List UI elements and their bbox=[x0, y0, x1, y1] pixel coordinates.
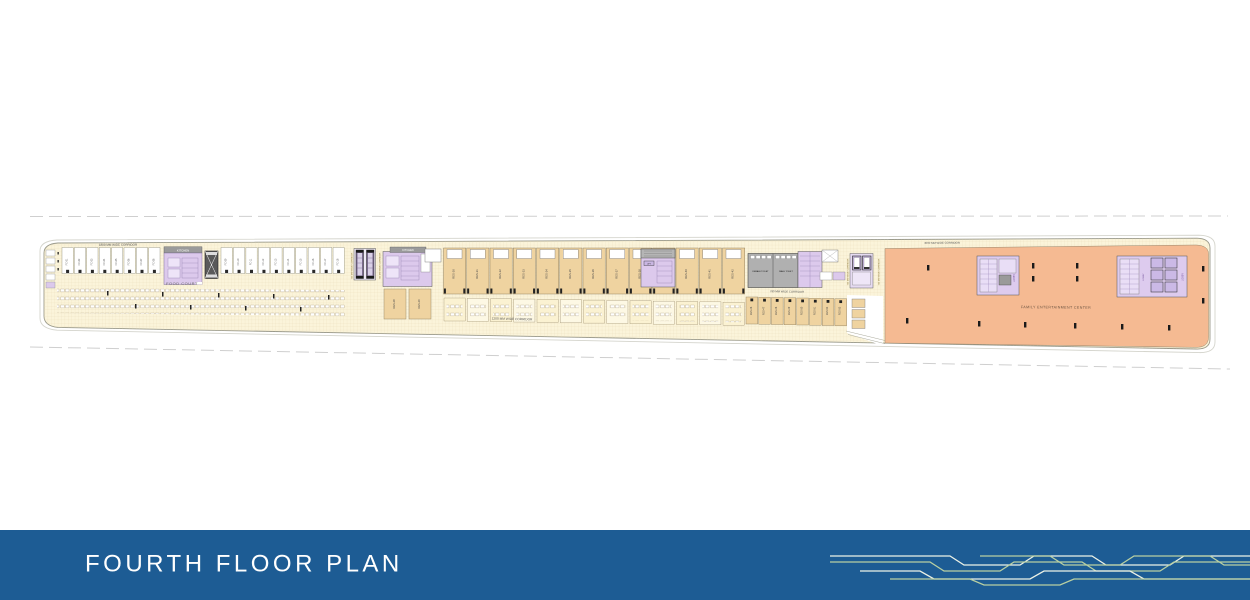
corridor-label: 750 MM WIDE CORRIDOR bbox=[352, 252, 354, 279]
corridor-label: 4000 MM WIDE CORRIDOR bbox=[924, 241, 960, 245]
corridor-label: 750 MM WIDE CORRIDOR bbox=[879, 258, 881, 285]
corridor-label: 750 MM WIDE CORRIDOR bbox=[848, 258, 850, 285]
unit-label: RES-53 bbox=[839, 306, 842, 315]
unit-label: FC-01 bbox=[66, 258, 69, 265]
fec-label: FAMILY ENTERTAINMENT CENTER bbox=[1021, 305, 1091, 310]
unit-label: RES-46 bbox=[750, 306, 753, 315]
unit-label: RES-30 bbox=[452, 269, 456, 279]
unit-label: RES-51 bbox=[813, 306, 816, 315]
unit-label: FC-02 bbox=[78, 258, 81, 265]
footer-bar: FOURTH FLOOR PLAN bbox=[0, 530, 1250, 600]
floor-plan-drawing: 1800 MM WIDE CORRIDOR FC-01FC-02FC-03FC-… bbox=[0, 0, 1250, 600]
unit-label: FC-06 bbox=[128, 258, 131, 265]
unit-label: FC-12 bbox=[262, 258, 265, 265]
stair-block bbox=[205, 251, 218, 279]
unit-label: RES-31 bbox=[475, 269, 479, 279]
top-dashed-line bbox=[30, 216, 1228, 217]
kitchen-label: KITCHEN bbox=[177, 248, 189, 252]
floor-plan-title: FOURTH FLOOR PLAN bbox=[85, 550, 403, 578]
unit-label: FC-16 bbox=[312, 258, 315, 265]
unit-label: RES-37 bbox=[614, 269, 618, 279]
kitchen-block: KITCHEN bbox=[164, 247, 202, 285]
unit-label: RES-48 bbox=[775, 306, 778, 315]
male-toilet-label: MALE TOILET bbox=[779, 270, 793, 273]
unit-label: FC-13 bbox=[274, 258, 277, 265]
unit-label: FC-11 bbox=[250, 258, 253, 265]
female-toilet-label: FEMALE TOILET bbox=[752, 270, 769, 273]
food-court-label: FOOD COURT bbox=[166, 281, 198, 286]
unit-label: RES-35 bbox=[568, 269, 572, 279]
unit-label: FC-07 bbox=[140, 258, 143, 265]
unit-label: FC-05 bbox=[115, 258, 118, 265]
unit-label: FC-09 bbox=[225, 258, 228, 265]
kitchen-label: KITCHEN bbox=[402, 248, 414, 252]
unit-label: RES-49 bbox=[788, 306, 791, 315]
food-court-tables bbox=[57, 288, 345, 316]
unit-label: RES-41 bbox=[707, 269, 711, 279]
fec-stair-lobby-1: LOBBY bbox=[977, 256, 1019, 295]
fec-stair-lobby-2: LOBBY LOBBY bbox=[1117, 256, 1187, 297]
corridor-label: 1800 MM WIDE CORRIDOR bbox=[99, 243, 138, 247]
unit-label: RES-34 bbox=[545, 269, 549, 279]
unit-label: FC-15 bbox=[299, 258, 302, 265]
unit-label: RES-33 bbox=[521, 269, 525, 279]
corridor-label: 750 MM WIDE CORRIDOR bbox=[380, 252, 382, 279]
unit-label: RES-28 bbox=[392, 299, 396, 309]
unit-label: FC-10 bbox=[237, 258, 240, 265]
unit-label: FC-14 bbox=[287, 258, 290, 265]
unit-label: FC-18 bbox=[337, 258, 340, 265]
unit-label: FC-17 bbox=[324, 258, 327, 265]
unit-label: FC-08 bbox=[152, 258, 155, 265]
lobby-label: LOBBY bbox=[1182, 273, 1185, 281]
unit-label: RES-36 bbox=[591, 269, 595, 279]
unit-label: RES-47 bbox=[763, 306, 766, 315]
unit-label: RES-40 bbox=[684, 269, 688, 279]
unit-label: FC-04 bbox=[103, 258, 106, 265]
mid-escalator-block: LIFT bbox=[641, 249, 675, 287]
unit-label: RES-32 bbox=[498, 269, 502, 279]
unit-label: RES-29 bbox=[417, 299, 421, 309]
family-entertainment-area: 4000 MM WIDE CORRIDOR LOBBY LOBBY LOBBY bbox=[885, 241, 1209, 348]
unit-label: FC-03 bbox=[90, 258, 93, 265]
unit-label: RES-52 bbox=[826, 306, 829, 315]
unit-label: RES-50 bbox=[801, 306, 804, 315]
lobby-label: LOBBY bbox=[1143, 273, 1145, 281]
circuit-trace-decoration bbox=[830, 550, 1250, 588]
bottom-dashed-line bbox=[30, 347, 1230, 369]
lift-cluster: 750 MM WIDE CORRIDOR 750 MM WIDE CORRIDO… bbox=[846, 254, 885, 347]
corridor-label: 780 MM WIDE CORRIDOR bbox=[770, 289, 804, 294]
unit-label: RES-42 bbox=[731, 269, 735, 279]
lobby-label: LOBBY bbox=[1013, 274, 1016, 282]
